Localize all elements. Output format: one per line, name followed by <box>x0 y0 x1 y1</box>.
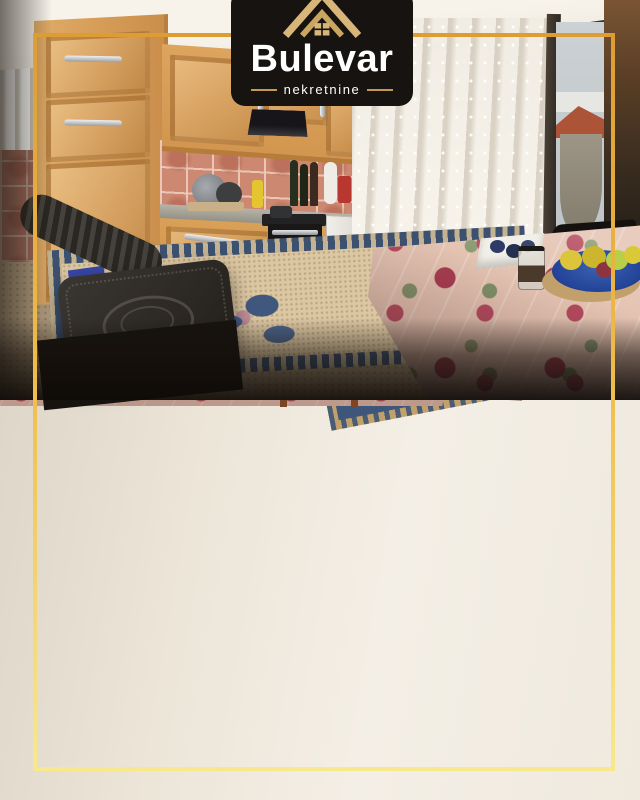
listing-collage: Bulevar nekretnine <box>0 0 640 800</box>
brand-logo: Bulevar nekretnine <box>231 0 413 106</box>
house-roof-icon <box>279 0 365 38</box>
gold-dash <box>251 89 277 91</box>
gold-dash <box>367 89 393 91</box>
brand-name: Bulevar <box>251 40 394 78</box>
brand-subtitle-row: nekretnine <box>251 82 394 97</box>
kitchen-photo <box>0 400 640 800</box>
brand-subtitle: nekretnine <box>284 82 361 97</box>
